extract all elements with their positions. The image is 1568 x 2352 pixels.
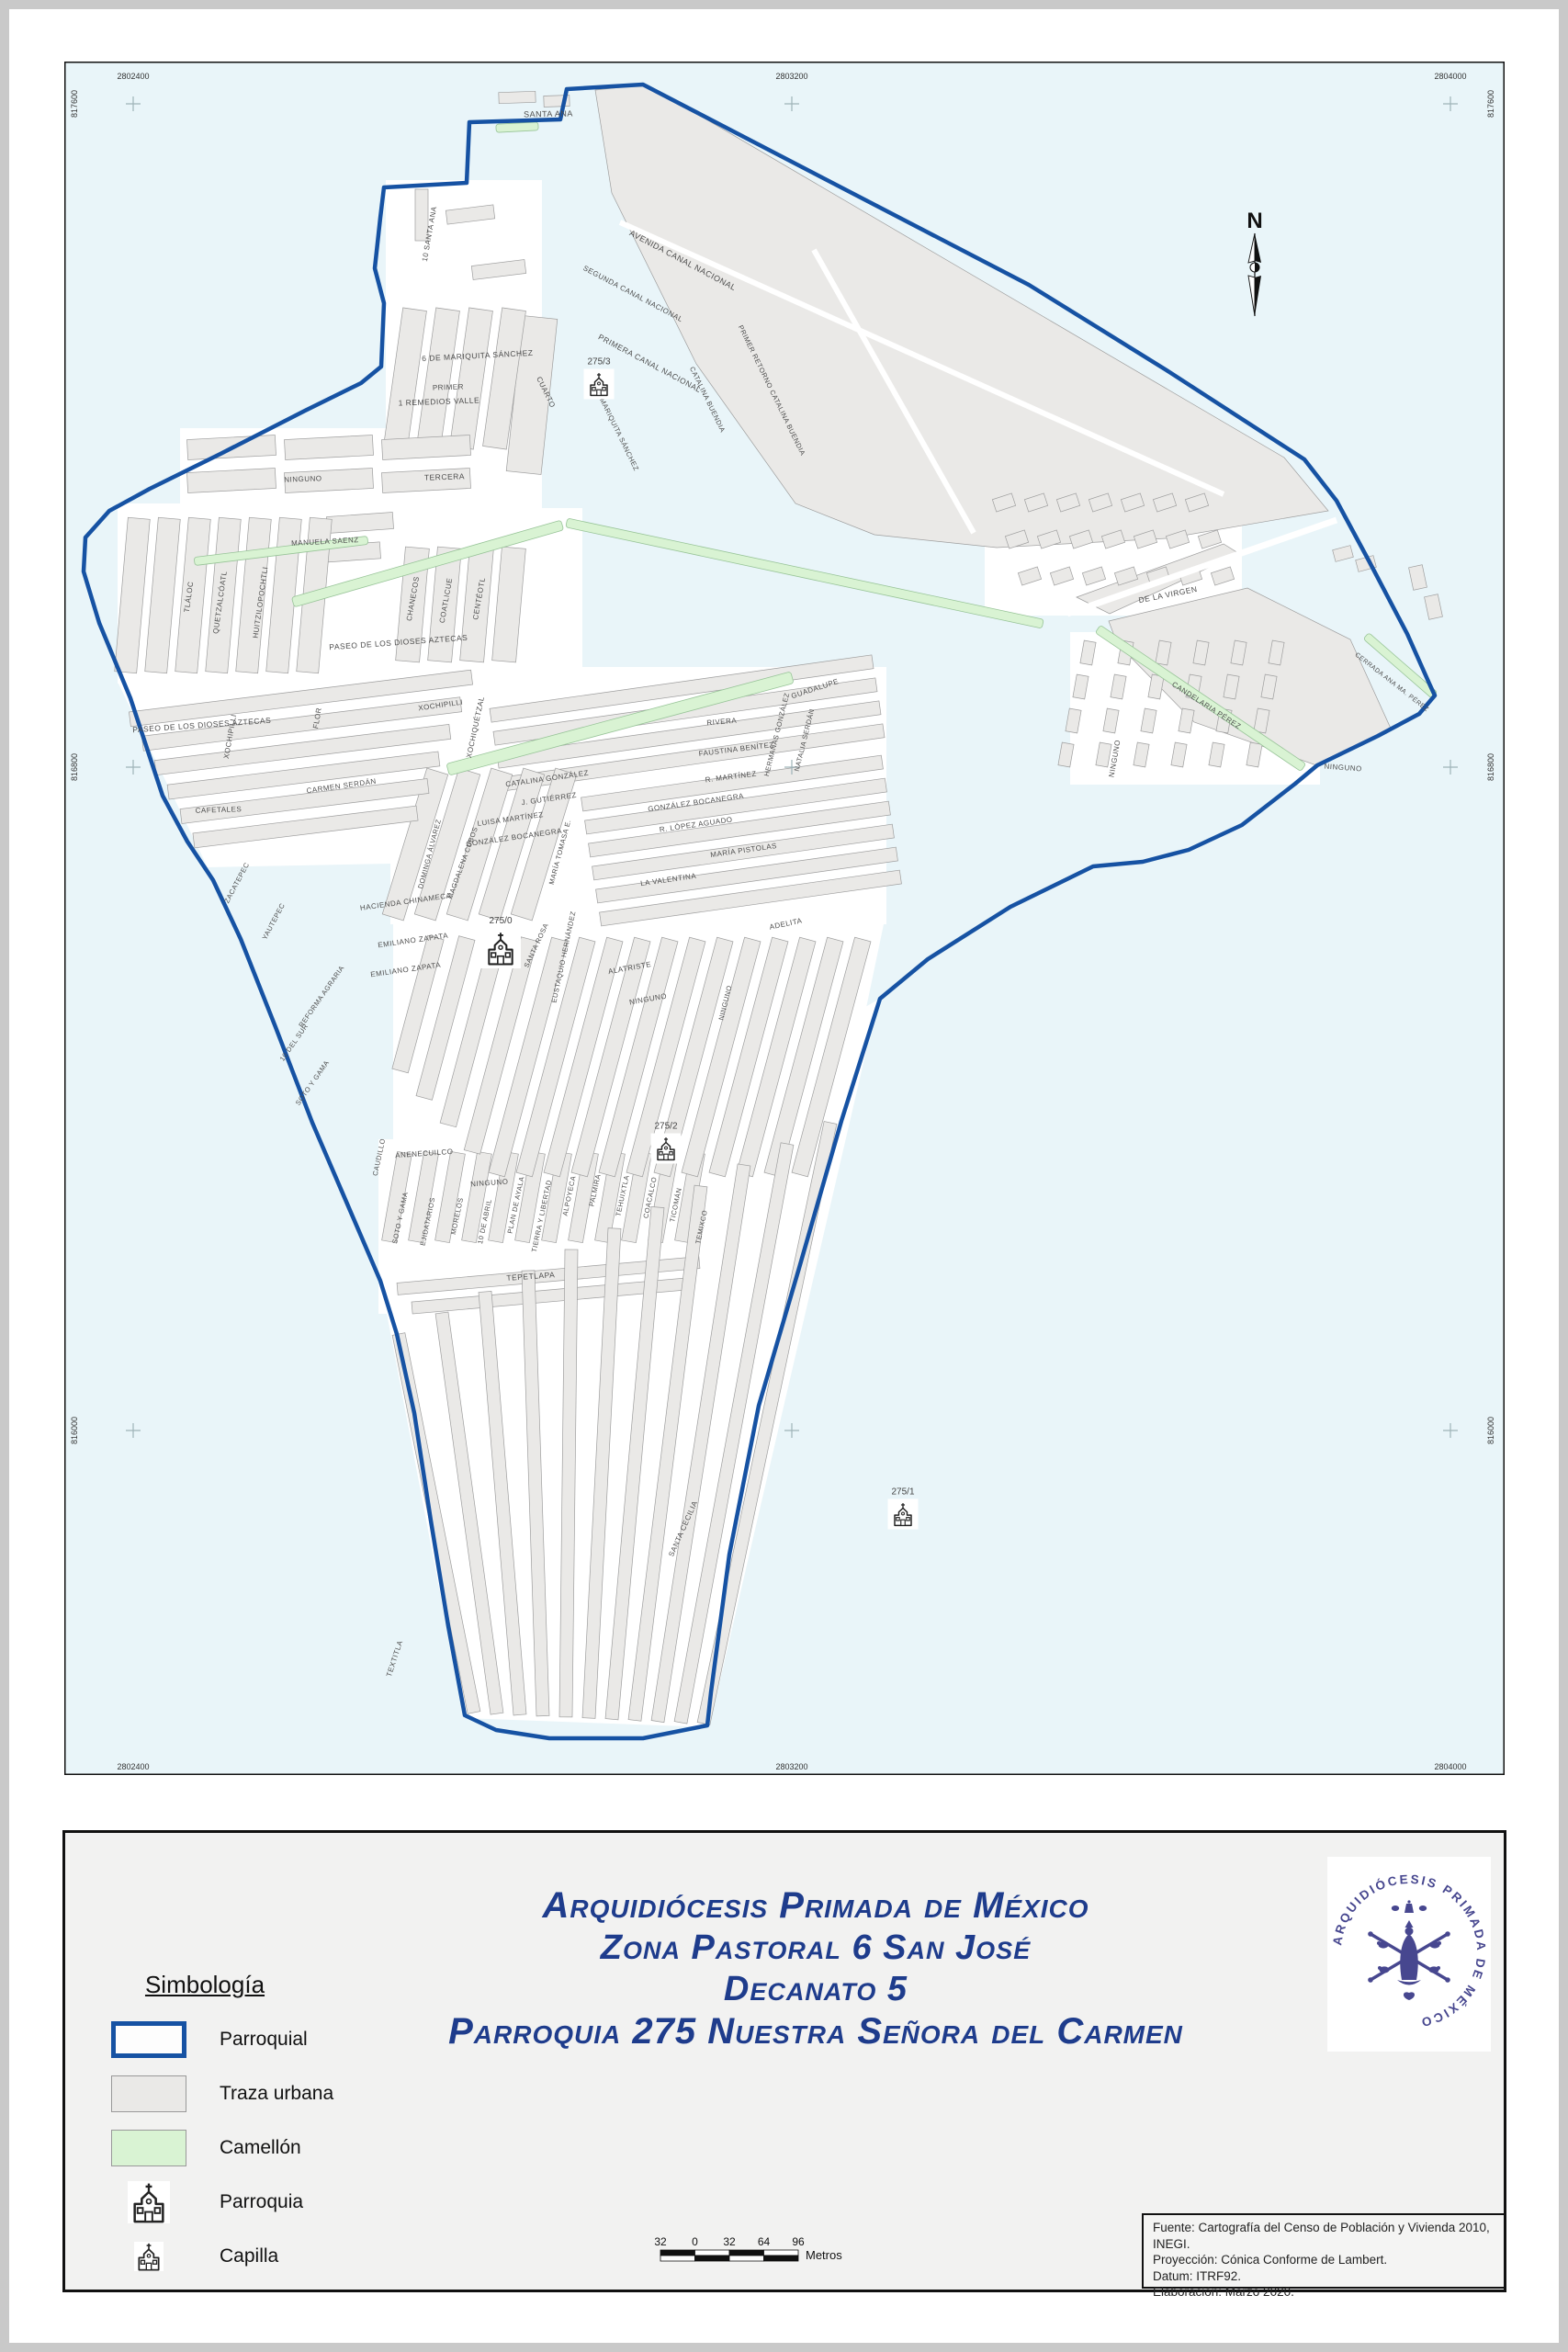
title-line-3: Decanato 5 bbox=[306, 1969, 1325, 2010]
archdiocese-logo: ARQUIDIÓCESIS PRIMADA DE MÉXICO bbox=[1327, 1857, 1491, 2052]
svg-text:817600: 817600 bbox=[1486, 90, 1495, 118]
legend-item-parroquia-icon: Parroquia bbox=[95, 2182, 398, 2222]
parroquia-church-icon bbox=[128, 2181, 170, 2223]
svg-text:816800: 816800 bbox=[70, 753, 79, 781]
church-marker-capilla: 275/3 bbox=[584, 357, 615, 400]
svg-text:0: 0 bbox=[692, 2235, 698, 2248]
legend-swatch-parroquial bbox=[111, 2021, 186, 2058]
church-id-label: 275/2 bbox=[654, 1122, 677, 1132]
info-panel: Simbología ParroquialTraza urbanaCamelló… bbox=[62, 1830, 1506, 2292]
credits-box: Fuente: Cartografía del Censo de Poblaci… bbox=[1142, 2213, 1506, 2289]
svg-text:816000: 816000 bbox=[1486, 1417, 1495, 1444]
street-label: TERCERA bbox=[424, 471, 465, 482]
virgin-mary-icon bbox=[1368, 1900, 1450, 2000]
church-id-label: 275/0 bbox=[489, 916, 512, 926]
svg-text:96: 96 bbox=[792, 2235, 805, 2248]
capilla-church-icon bbox=[134, 2242, 164, 2271]
legend-label: Parroquia bbox=[220, 2191, 303, 2213]
legend-swatch-camellon bbox=[111, 2130, 186, 2166]
legend-label: Capilla bbox=[220, 2245, 278, 2267]
svg-text:2804000: 2804000 bbox=[1434, 72, 1466, 81]
svg-text:2803200: 2803200 bbox=[775, 1762, 807, 1771]
legend-label: Camellón bbox=[220, 2137, 301, 2159]
street-label: PRIMER bbox=[433, 382, 464, 391]
svg-text:2802400: 2802400 bbox=[117, 1762, 149, 1771]
svg-text:816800: 816800 bbox=[1486, 753, 1495, 781]
svg-text:2802400: 2802400 bbox=[117, 72, 149, 81]
credit-line: Fuente: Cartografía del Censo de Poblaci… bbox=[1153, 2220, 1495, 2252]
legend-label: Parroquial bbox=[220, 2029, 308, 2051]
legend-item-capilla-icon: Capilla bbox=[95, 2236, 398, 2277]
map-canvas: SANTA ANA10 SANTA ANAAVENIDA CANAL NACIO… bbox=[64, 62, 1505, 1775]
svg-text:64: 64 bbox=[758, 2235, 771, 2248]
street-label: NINGUNO bbox=[284, 474, 322, 483]
svg-text:2803200: 2803200 bbox=[775, 72, 807, 81]
legend-swatch-traza bbox=[111, 2075, 186, 2112]
street-label: SANTA ANA bbox=[524, 109, 573, 119]
title-line-1: Arquidiócesis Primada de México bbox=[306, 1884, 1325, 1928]
credit-line: Datum: ITRF92. bbox=[1153, 2268, 1495, 2285]
svg-text:816000: 816000 bbox=[70, 1417, 79, 1444]
svg-text:2804000: 2804000 bbox=[1434, 1762, 1466, 1771]
legend-label: Traza urbana bbox=[220, 2083, 333, 2105]
map-document-page: SANTA ANA10 SANTA ANAAVENIDA CANAL NACIO… bbox=[0, 0, 1568, 2352]
legend-item-camellon: Camellón bbox=[95, 2128, 398, 2168]
legend-item-traza: Traza urbana bbox=[95, 2074, 398, 2114]
title-line-2: Zona Pastoral 6 San José bbox=[306, 1928, 1325, 1969]
street-label: CAFETALES bbox=[195, 805, 242, 815]
svg-text:817600: 817600 bbox=[70, 90, 79, 118]
church-marker-capilla: 275/2 bbox=[651, 1122, 682, 1164]
svg-text:32: 32 bbox=[654, 2235, 667, 2248]
svg-text:Metros: Metros bbox=[806, 2248, 842, 2262]
church-id-label: 275/1 bbox=[891, 1487, 914, 1498]
title-line-4: Parroquia 275 Nuestra Señora del Carmen bbox=[306, 2010, 1325, 2053]
scale-bar: 320326496Metros bbox=[646, 2235, 866, 2273]
church-marker-capilla: 275/1 bbox=[888, 1487, 919, 1530]
credit-line: Elaboración: Marzo 2020. bbox=[1153, 2284, 1495, 2301]
map-title-block: Arquidiócesis Primada de MéxicoZona Past… bbox=[306, 1884, 1325, 2053]
church-id-label: 275/3 bbox=[587, 357, 610, 367]
svg-text:32: 32 bbox=[723, 2235, 736, 2248]
legend-title: Simbología bbox=[95, 1971, 315, 1999]
north-label: N bbox=[1247, 209, 1262, 233]
credit-line: Proyección: Cónica Conforme de Lambert. bbox=[1153, 2252, 1495, 2268]
